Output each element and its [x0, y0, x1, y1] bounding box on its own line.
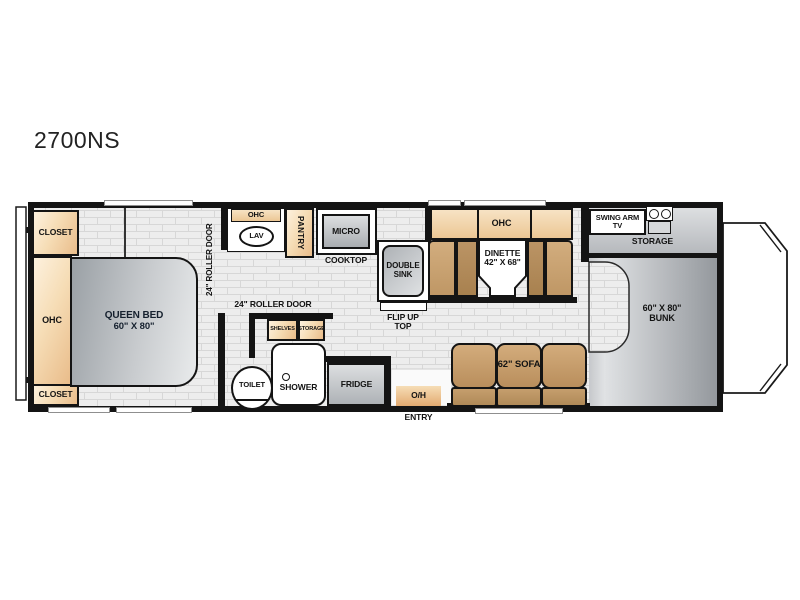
flip-up-top-counter	[380, 302, 427, 311]
bath-storage: STORAGE	[298, 319, 325, 341]
entry-mat: O/H	[396, 386, 441, 406]
swing-arm-tv: SWING ARM TV	[589, 209, 646, 235]
window-sofa	[475, 408, 563, 414]
window-dinette-top-2	[464, 200, 546, 206]
toilet: TOILET	[231, 366, 273, 410]
toilet-seat-line	[236, 399, 268, 401]
wall-bath-left	[218, 313, 225, 406]
window-bottom-2	[116, 407, 192, 413]
sofa: 62" SOFA	[451, 343, 587, 407]
lav-sink: LAV	[239, 226, 274, 247]
console-knob-icon	[661, 209, 671, 219]
cab-console-lower	[648, 221, 671, 234]
floorplan-page: 2700NS	[0, 0, 800, 600]
double-sink: DOUBLE SINK	[382, 245, 424, 297]
sofa-label: 62" SOFA	[451, 360, 587, 370]
ohc-dinette: OHC	[430, 208, 573, 240]
fridge: FRIDGE	[327, 361, 386, 406]
sofa-seat	[541, 387, 587, 407]
dinette-bench-right-back	[545, 240, 573, 297]
closet-top: CLOSET	[32, 210, 79, 256]
shower: SHOWER	[271, 343, 326, 406]
roller-door-vertical-label: 24" ROLLER DOOR	[206, 210, 220, 310]
shelves: SHELVES	[267, 319, 298, 341]
window-dinette-top-1	[428, 200, 461, 206]
cab-console	[646, 206, 673, 221]
ohc-divider	[477, 210, 479, 238]
sofa-seat	[496, 387, 542, 407]
sofa-seat	[451, 387, 497, 407]
wall-tv-divider	[581, 208, 589, 262]
front-cab	[723, 223, 787, 393]
shower-drain-icon	[282, 373, 290, 381]
wall-dinette-bottom	[425, 297, 577, 303]
ohc-bedroom: OHC	[32, 256, 72, 386]
window-bottom-1	[48, 407, 110, 413]
dinette-bench-left-back	[428, 240, 456, 297]
cooktop-label: COOKTOP	[312, 256, 380, 265]
queen-bed: QUEEN BED 60" X 80"	[70, 257, 198, 387]
wall-bath-jog	[249, 313, 255, 358]
bedroom-divider-line	[124, 208, 126, 257]
ohc-lav: OHC	[231, 209, 281, 222]
entry-label: ENTRY	[396, 413, 441, 422]
microwave: MICRO	[322, 214, 370, 249]
console-knob-icon	[649, 209, 659, 219]
closet-bottom: CLOSET	[32, 384, 79, 406]
dinette-label: DINETTE 42" X 68"	[470, 249, 535, 267]
window-bed-top	[104, 200, 193, 206]
bunk-label: 60" X 80" BUNK	[618, 304, 706, 323]
front-storage-label: STORAGE	[600, 237, 705, 246]
pantry: PANTRY	[285, 208, 314, 258]
roller-door-bath-label: 24" ROLLER DOOR	[218, 300, 328, 309]
flip-up-top-label: FLIP UP TOP	[371, 313, 435, 331]
ohc-divider	[530, 210, 532, 238]
